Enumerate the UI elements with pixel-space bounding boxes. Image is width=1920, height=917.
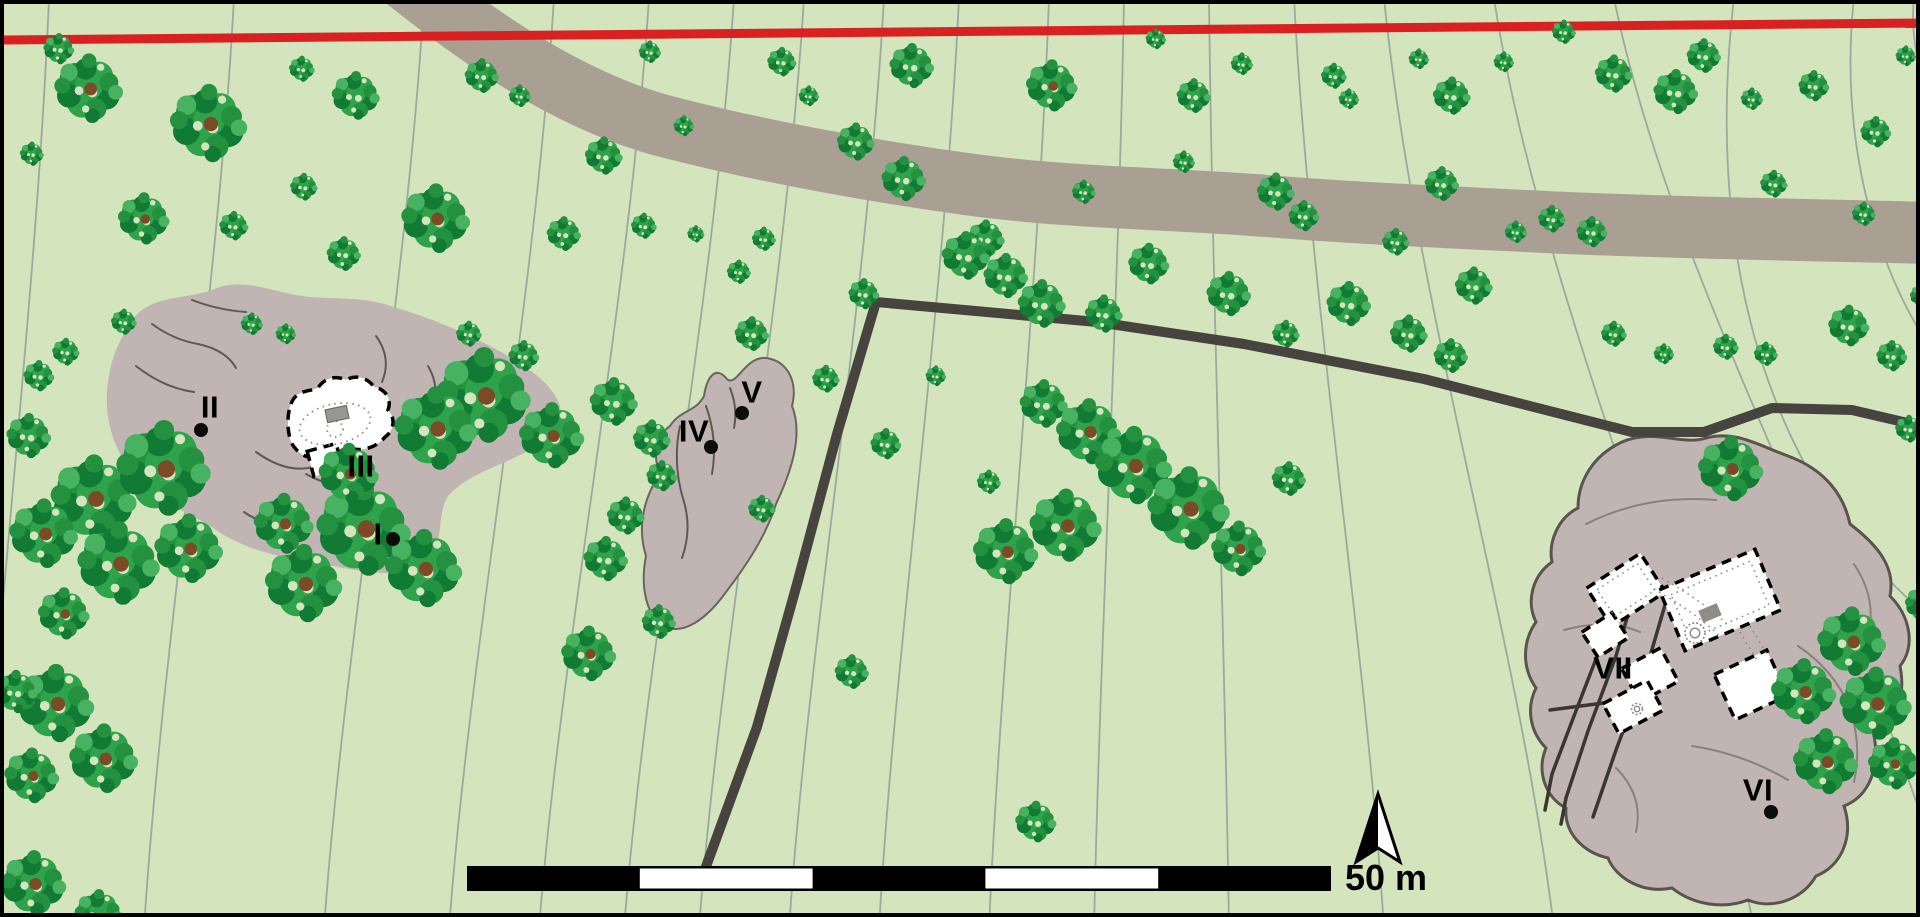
site-label-III: III [347,451,374,482]
scale-bar [467,866,1331,891]
site-dot-II [194,423,208,437]
site-label-VI: VI [1743,775,1773,806]
site-label-V: V [741,377,762,408]
site-label-VII: VII [1593,653,1632,684]
site-label-II: II [201,392,219,423]
site-label-I: I [373,519,382,550]
site-label-IV: IV [679,416,709,447]
site-dot-I [386,532,400,546]
site-map: IIIIIIIVVVIVII 50 m [0,0,1920,917]
scale-bar-label: 50 m [1345,860,1427,896]
map-canvas [4,4,1920,917]
